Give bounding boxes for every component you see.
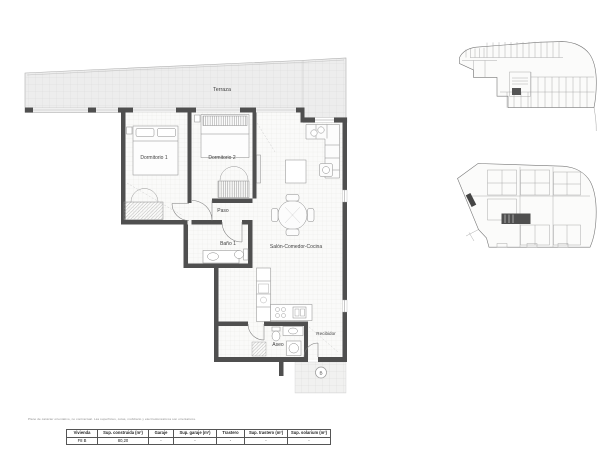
- room-label-paso: Paso: [217, 208, 229, 214]
- disclaimer-text: Plano de carácter orientativo, no contra…: [28, 417, 196, 421]
- cell-garaje: -: [149, 437, 174, 445]
- header-garaje: Garaje: [149, 430, 174, 438]
- garage-core-dark: [512, 88, 521, 95]
- header-trastero: Trastero: [217, 430, 245, 438]
- key-plan-level: [458, 164, 597, 248]
- level-core-dark: [502, 214, 531, 225]
- room-label-aseo: Aseo: [272, 342, 284, 348]
- cell-sup-garaje: -: [174, 437, 217, 445]
- room-label-bano1: Baño 1: [220, 241, 236, 247]
- room-label-salon: Salón-Comedor-Cocina: [270, 244, 322, 250]
- header-sup-garaje: Sup. garaje (m²): [174, 430, 217, 438]
- areas-table-header-row: Vivienda Sup. construida (m²) Garaje Sup…: [67, 430, 331, 438]
- floorplan-page: Terraza: [0, 0, 615, 454]
- room-label-dormitorio2: Dormitorio 2: [208, 155, 235, 161]
- cell-vivienda: F8 B: [67, 437, 98, 445]
- room-label-recibidor: Recibidor: [316, 331, 336, 336]
- room-label-terraza: Terraza: [213, 87, 231, 93]
- header-sup-solarium: Sup. solarium (m²): [288, 430, 331, 438]
- cell-sup-trastero: -: [245, 437, 288, 445]
- header-vivienda: Vivienda: [67, 430, 98, 438]
- room-label-dormitorio1: Dormitorio 1: [140, 155, 167, 161]
- key-plan-garage: [460, 42, 597, 131]
- cell-sup-construida: 80,20: [98, 437, 149, 445]
- cell-sup-solarium: -: [288, 437, 331, 445]
- entrance-marker-label: B: [319, 371, 322, 376]
- floorplan-canvas: Terraza: [0, 0, 615, 454]
- header-sup-construida: Sup. construida (m²): [98, 430, 149, 438]
- cell-trastero: -: [217, 437, 245, 445]
- window-band-top: [25, 108, 304, 112]
- areas-table: Vivienda Sup. construida (m²) Garaje Sup…: [66, 429, 331, 445]
- entrance-marker: B: [316, 367, 327, 378]
- areas-table-data-row: F8 B 80,20 - - - - -: [67, 437, 331, 445]
- header-sup-trastero: Sup. trastero (m²): [245, 430, 288, 438]
